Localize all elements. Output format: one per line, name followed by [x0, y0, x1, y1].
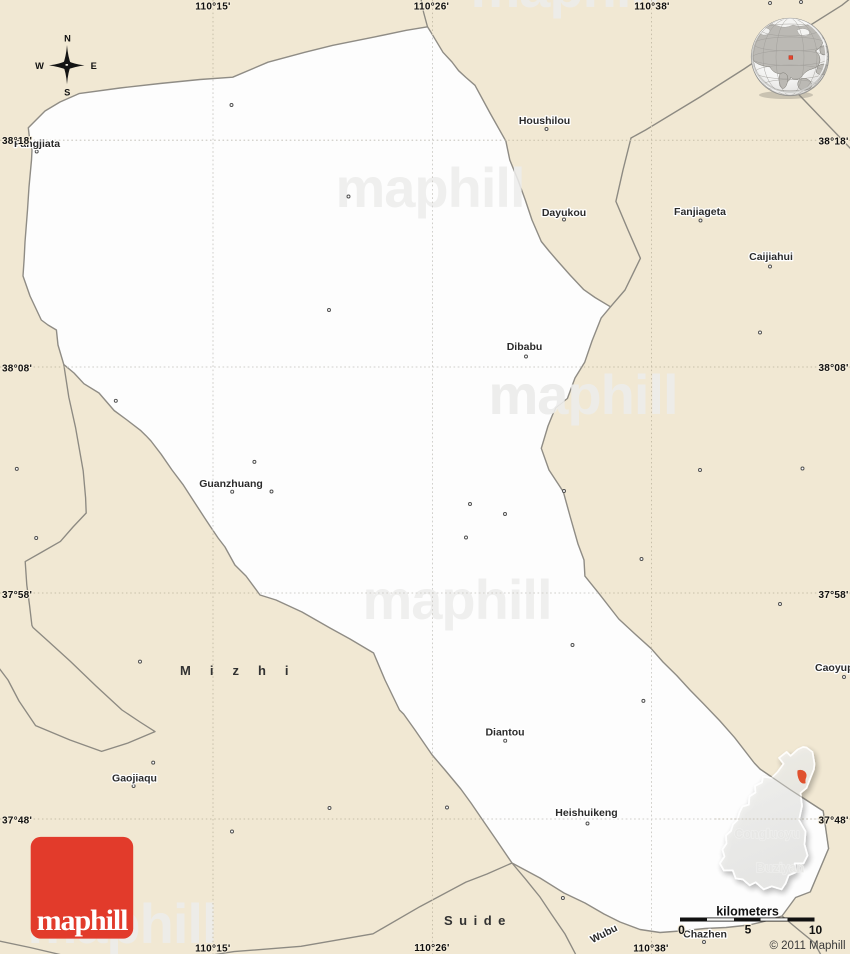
svg-text:Dayukou: Dayukou	[542, 207, 586, 219]
svg-text:38°18': 38°18'	[818, 137, 848, 148]
svg-text:0: 0	[678, 923, 685, 937]
svg-text:37°48': 37°48'	[2, 816, 32, 827]
svg-text:E: E	[91, 61, 97, 71]
svg-text:Caijiahui: Caijiahui	[749, 251, 793, 263]
svg-text:Dibabu: Dibabu	[507, 341, 543, 353]
svg-text:110°26': 110°26'	[414, 2, 449, 13]
svg-text:110°15': 110°15'	[195, 2, 230, 13]
svg-text:38°18': 38°18'	[2, 136, 32, 147]
svg-text:maphill: maphill	[470, 0, 659, 19]
svg-text:110°38': 110°38'	[633, 944, 668, 954]
svg-text:maphill: maphill	[362, 568, 551, 631]
svg-text:110°26': 110°26'	[414, 943, 449, 954]
svg-text:38°08': 38°08'	[2, 364, 32, 375]
svg-text:Caoyupu: Caoyupu	[815, 662, 850, 674]
svg-text:10: 10	[809, 923, 823, 937]
svg-text:kilometers: kilometers	[716, 905, 779, 919]
svg-text:110°15': 110°15'	[195, 944, 230, 954]
svg-text:Buziyan: Buziyan	[756, 861, 804, 875]
svg-text:maphill: maphill	[335, 156, 524, 219]
svg-text:5: 5	[745, 923, 752, 937]
svg-text:110°38': 110°38'	[634, 2, 669, 13]
svg-text:37°58': 37°58'	[818, 590, 848, 601]
svg-text:maphill: maphill	[37, 904, 128, 937]
svg-text:© 2011 Maphill: © 2011 Maphill	[769, 940, 845, 952]
svg-text:37°58': 37°58'	[2, 590, 32, 601]
svg-text:37°48': 37°48'	[818, 816, 848, 827]
svg-text:Chazhen: Chazhen	[683, 929, 727, 941]
svg-text:Gaojiaqu: Gaojiaqu	[112, 773, 157, 785]
svg-text:Heishuikeng: Heishuikeng	[555, 807, 617, 819]
svg-text:W: W	[35, 61, 44, 71]
svg-text:Houshilou: Houshilou	[519, 115, 570, 127]
svg-text:38°08': 38°08'	[818, 363, 848, 374]
svg-text:Guanzhuang: Guanzhuang	[199, 478, 263, 490]
svg-text:N: N	[64, 34, 71, 44]
svg-text:Mizhi: Mizhi	[180, 663, 308, 678]
svg-text:Fanjiageta: Fanjiageta	[674, 206, 726, 218]
svg-text:Congluoyu: Congluoyu	[734, 827, 799, 841]
svg-text:Suide: Suide	[444, 913, 512, 928]
svg-text:Diantou: Diantou	[485, 727, 524, 739]
svg-text:S: S	[64, 88, 70, 98]
